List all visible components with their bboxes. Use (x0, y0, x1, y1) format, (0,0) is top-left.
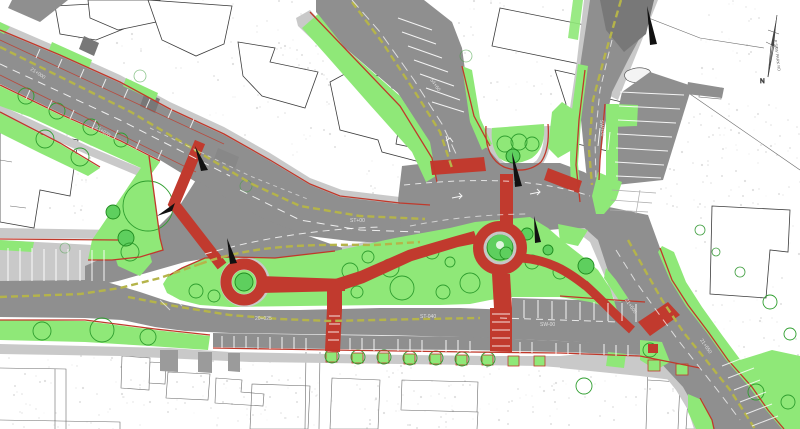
svg-text:20+025: 20+025 (255, 316, 272, 322)
svg-text:ST+00: ST+00 (350, 218, 365, 224)
svg-text:ST-040: ST-040 (420, 314, 436, 320)
svg-text:N: N (760, 78, 765, 85)
svg-text:SW-00: SW-00 (540, 322, 555, 328)
